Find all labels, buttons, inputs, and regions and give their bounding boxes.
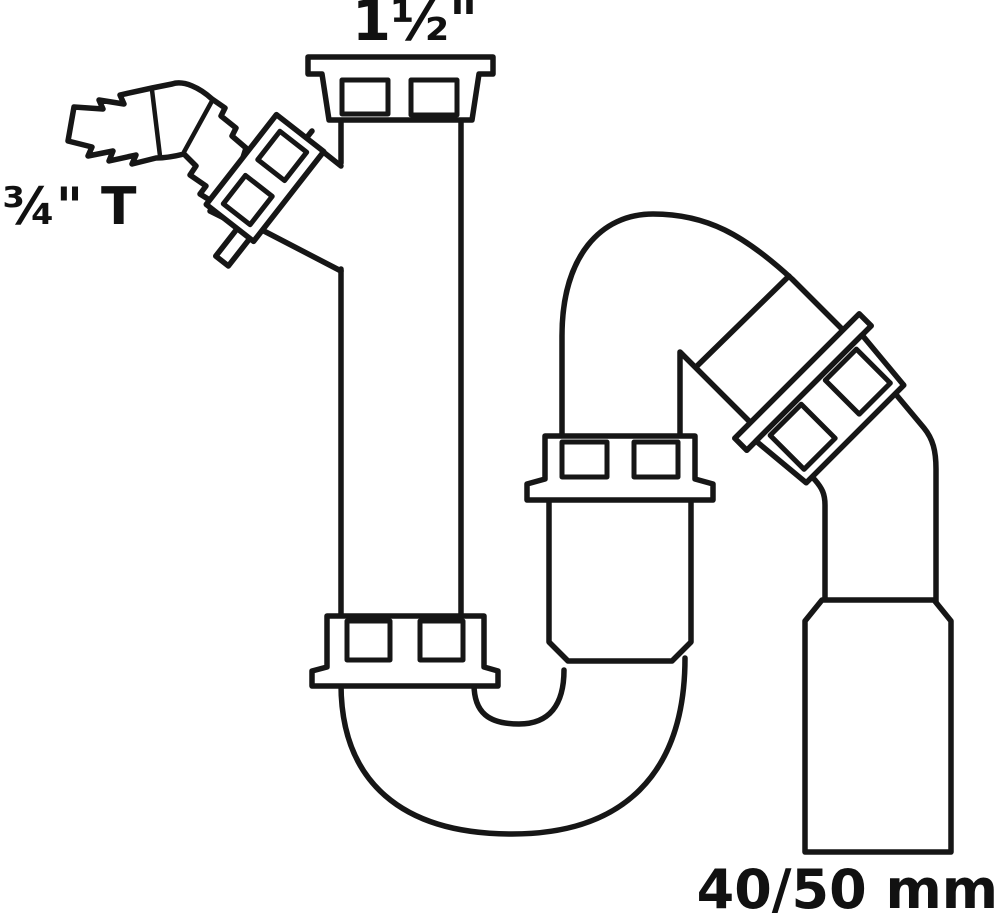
vertical-inlet-pipe bbox=[341, 120, 461, 618]
label-inlet-size: 1½" bbox=[352, 0, 478, 54]
trap-union-nut bbox=[527, 436, 713, 500]
label-outlet-size: 40/50 mm bbox=[697, 858, 998, 917]
lower-union-nut bbox=[312, 616, 498, 686]
trap-diagram: 1½" ¾" T 40/50 mm bbox=[0, 0, 1000, 917]
inlet-union-nut bbox=[308, 57, 493, 120]
trap-cup-body bbox=[549, 498, 691, 661]
label-branch-size: ¾" T bbox=[2, 177, 137, 237]
outlet-adapter-40-50 bbox=[805, 600, 951, 852]
pipe-trap-drawing: 1½" ¾" T 40/50 mm bbox=[0, 0, 1000, 917]
